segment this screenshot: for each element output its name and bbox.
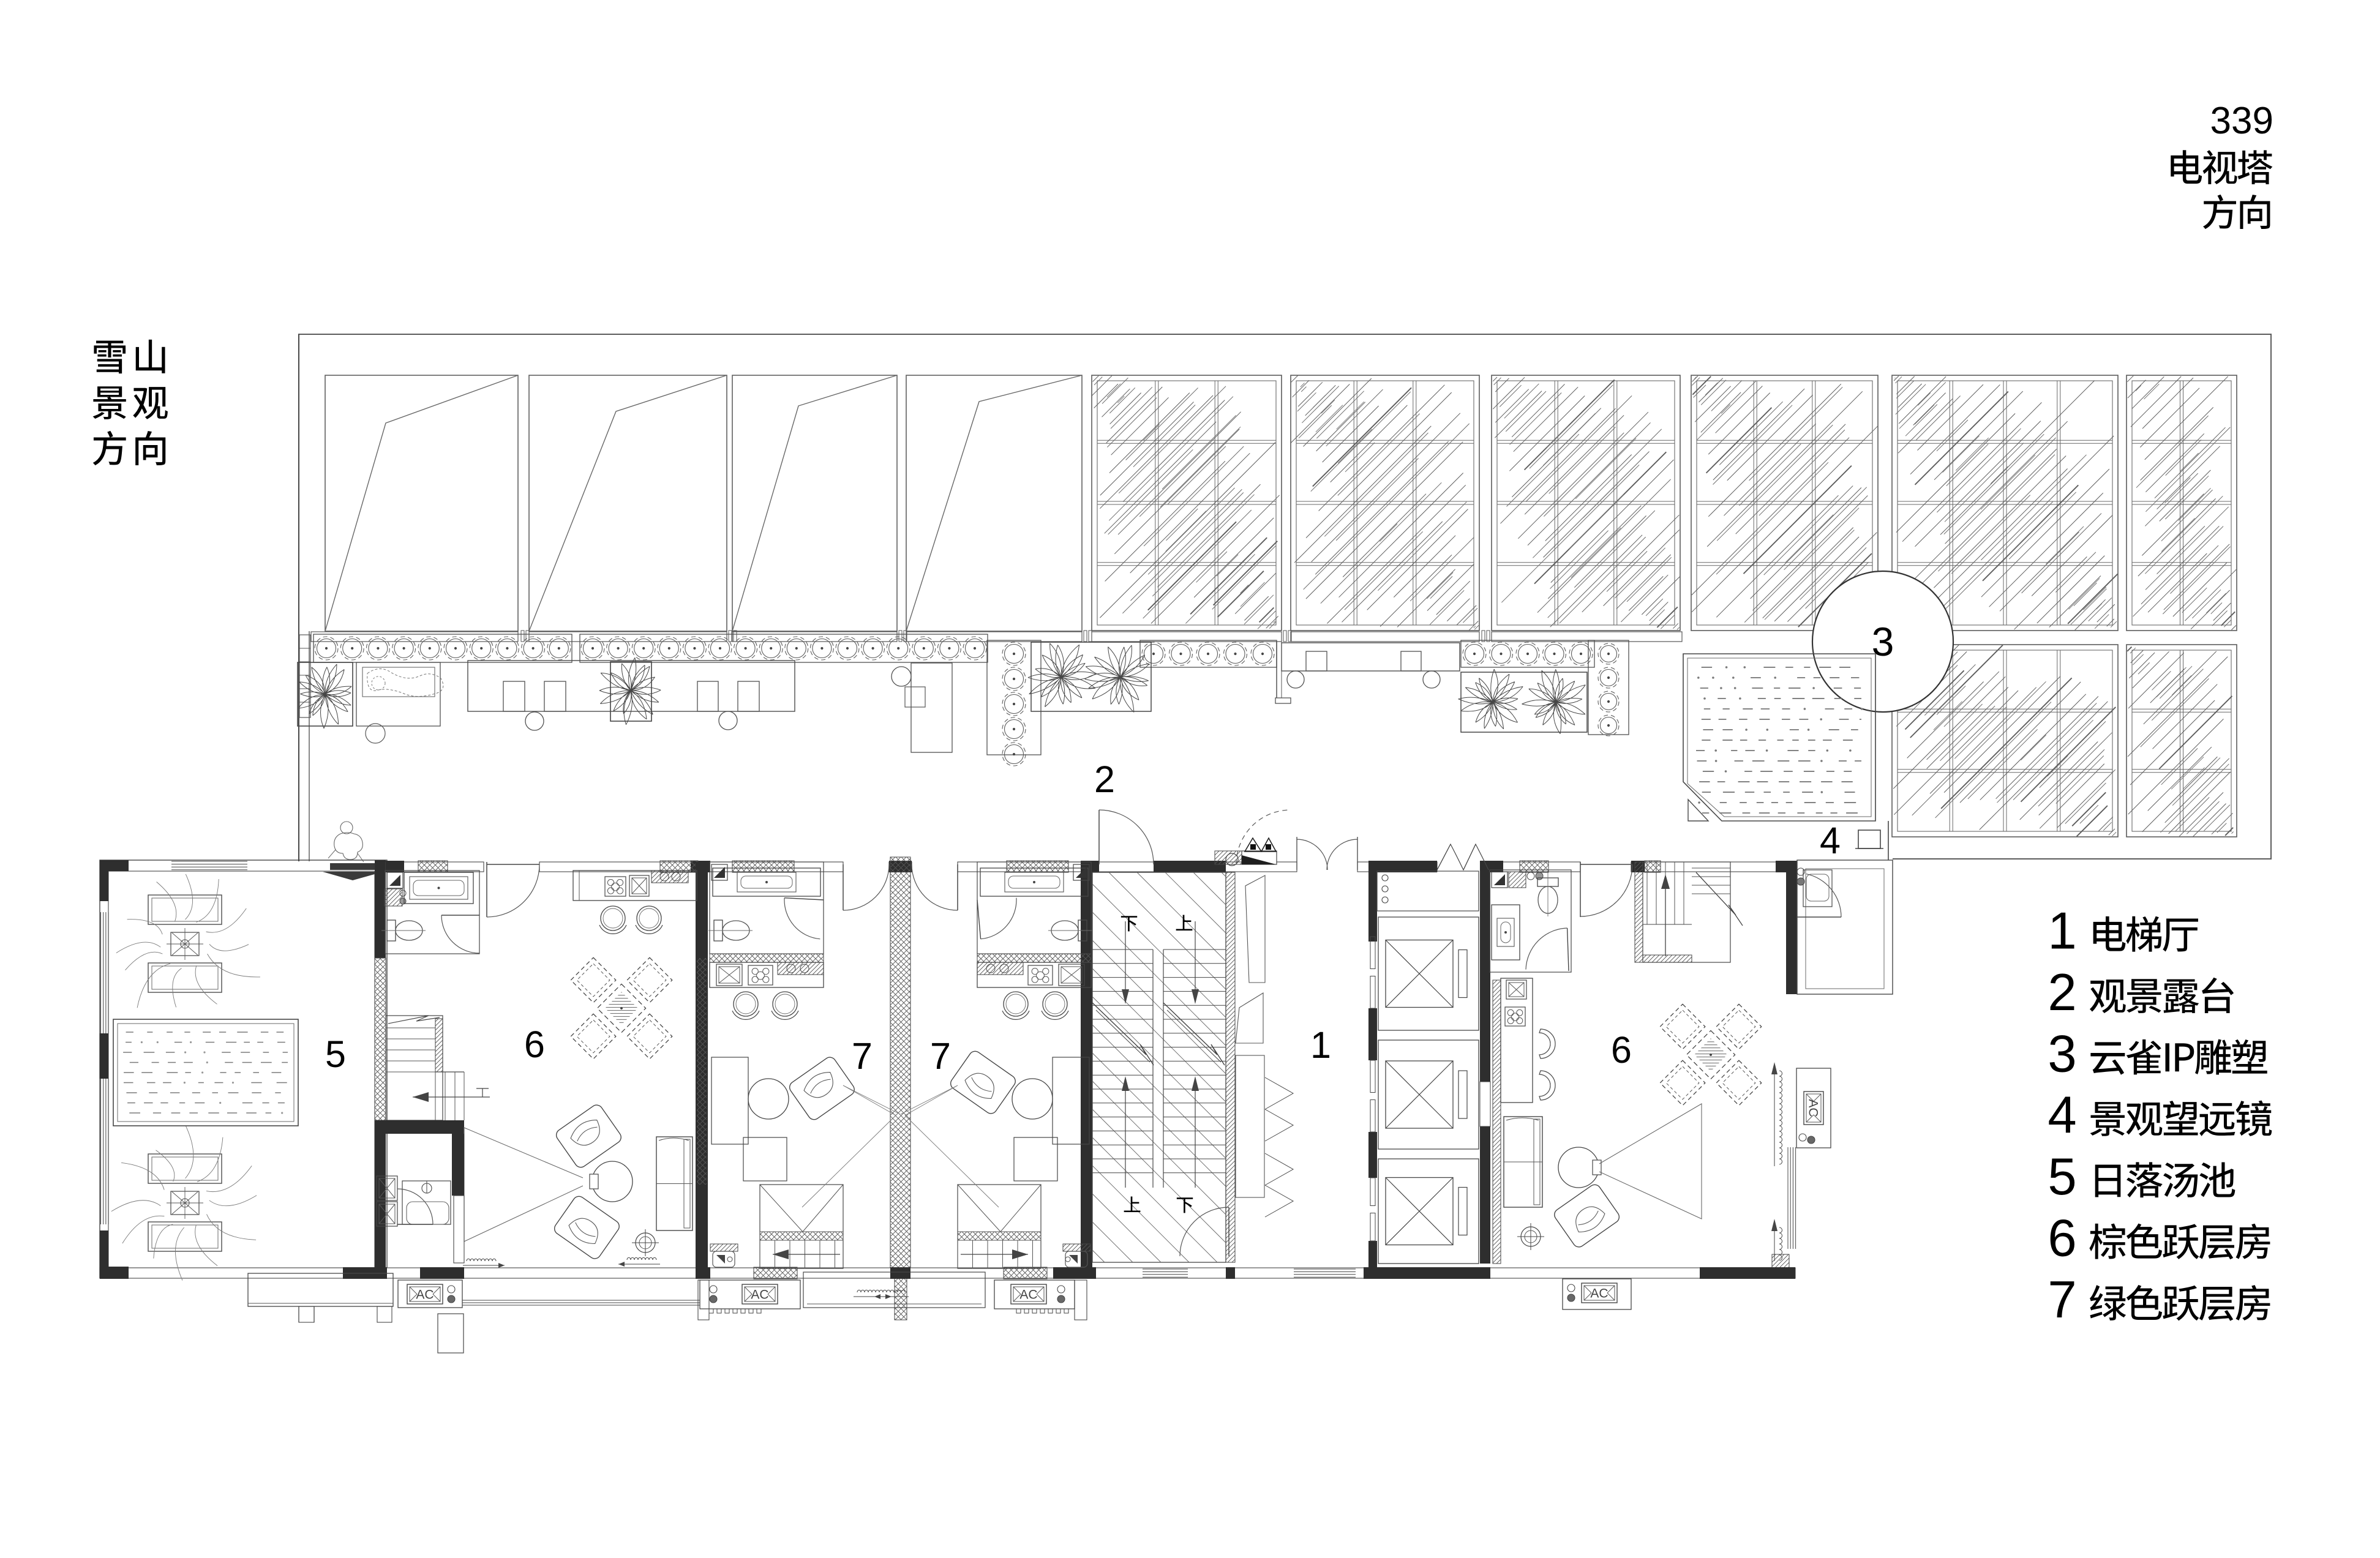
svg-text:339: 339 (2210, 100, 2273, 142)
svg-text:7: 7 (930, 1035, 951, 1077)
svg-text:AC: AC (1019, 1288, 1037, 1302)
svg-text:2: 2 (1094, 758, 1115, 800)
svg-text:4: 4 (2048, 1087, 2076, 1145)
svg-text:2: 2 (2048, 964, 2076, 1022)
svg-text:AC: AC (751, 1288, 768, 1302)
svg-text:6: 6 (524, 1024, 545, 1065)
svg-text:AC: AC (1806, 1099, 1820, 1117)
svg-text:7: 7 (852, 1035, 873, 1077)
svg-text:5: 5 (2048, 1148, 2076, 1206)
svg-text:5: 5 (325, 1033, 346, 1075)
svg-text:7: 7 (2048, 1271, 2076, 1329)
svg-text:6: 6 (1611, 1029, 1632, 1071)
svg-text:1: 1 (1310, 1024, 1331, 1066)
svg-text:6: 6 (2048, 1210, 2076, 1268)
svg-text:4: 4 (1820, 820, 1841, 861)
svg-text:AC: AC (416, 1288, 434, 1302)
svg-text:3: 3 (1872, 619, 1894, 664)
svg-text:3: 3 (2048, 1025, 2076, 1083)
svg-text:AC: AC (1590, 1287, 1608, 1301)
svg-text:1: 1 (2048, 902, 2076, 961)
